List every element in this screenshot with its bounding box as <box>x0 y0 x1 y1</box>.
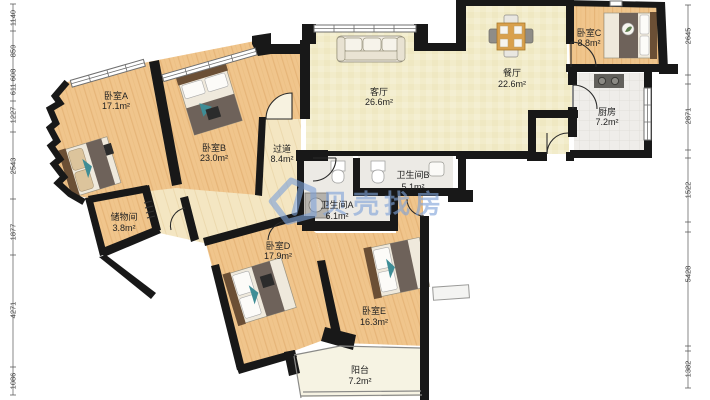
svg-text:厨房: 厨房 <box>598 106 616 117</box>
svg-text:1382: 1382 <box>684 361 693 378</box>
svg-text:6.1m²: 6.1m² <box>325 211 348 221</box>
svg-text:23.0m²: 23.0m² <box>200 153 228 163</box>
svg-text:1140: 1140 <box>9 10 18 26</box>
svg-text:7.2m²: 7.2m² <box>348 376 371 386</box>
svg-text:卫生间B: 卫生间B <box>396 169 429 180</box>
svg-text:卧室D: 卧室D <box>266 240 291 251</box>
svg-text:卧室E: 卧室E <box>362 305 386 316</box>
svg-text:4271: 4271 <box>9 302 18 319</box>
svg-text:859: 859 <box>9 45 18 58</box>
svg-text:卧室A: 卧室A <box>104 90 128 101</box>
svg-text:2871: 2871 <box>684 108 693 125</box>
svg-text:过道: 过道 <box>273 143 291 154</box>
svg-text:3.8m²: 3.8m² <box>112 223 135 233</box>
svg-text:16.3m²: 16.3m² <box>360 317 388 327</box>
svg-text:1522: 1522 <box>684 182 693 199</box>
svg-text:611 608: 611 608 <box>9 69 18 96</box>
svg-text:22.6m²: 22.6m² <box>498 79 526 89</box>
svg-text:26.6m²: 26.6m² <box>365 97 393 107</box>
svg-text:2543: 2543 <box>9 158 18 175</box>
svg-text:17.1m²: 17.1m² <box>102 101 130 111</box>
svg-text:餐厅: 餐厅 <box>503 67 521 78</box>
svg-text:5.1m²: 5.1m² <box>401 182 424 192</box>
svg-text:2645: 2645 <box>684 28 693 45</box>
svg-text:8.4m²: 8.4m² <box>270 154 293 164</box>
svg-text:卫生间A: 卫生间A <box>320 199 353 210</box>
svg-text:17.9m²: 17.9m² <box>264 251 292 261</box>
svg-text:1086: 1086 <box>9 373 18 390</box>
svg-text:阳台: 阳台 <box>351 364 369 375</box>
svg-text:7.2m²: 7.2m² <box>595 117 618 127</box>
svg-text:5428: 5428 <box>684 266 693 283</box>
svg-text:8.8m²: 8.8m² <box>577 38 600 48</box>
svg-text:卧室B: 卧室B <box>202 142 226 153</box>
svg-text:客厅: 客厅 <box>370 86 388 97</box>
svg-text:1877: 1877 <box>9 224 18 241</box>
svg-text:储物间: 储物间 <box>110 211 137 222</box>
svg-text:卧室C: 卧室C <box>577 27 602 38</box>
svg-text:1227: 1227 <box>9 107 18 124</box>
